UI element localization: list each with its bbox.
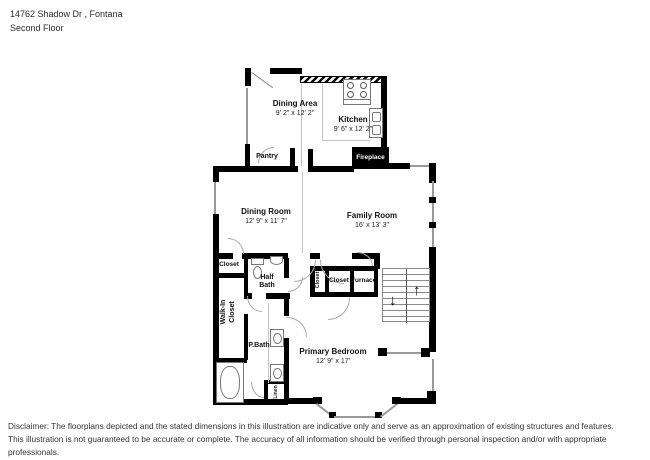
stove-icon (343, 79, 371, 100)
wall (245, 68, 251, 86)
wall (392, 397, 401, 404)
room-label-closet-small: Closet (314, 265, 322, 295)
bay-window (334, 416, 378, 418)
room-name: Primary Bedroom (299, 347, 366, 356)
burner-icon (347, 82, 354, 89)
window (214, 182, 216, 214)
room-label-walk-in-closet: Walk-In Closet (219, 295, 237, 329)
wall (429, 247, 436, 352)
fireplace-box: Fireplace (352, 147, 389, 169)
room-dims: 12' 9" x 17' (283, 357, 383, 367)
counter-line (301, 84, 302, 166)
bathtub-icon (216, 362, 244, 403)
room-dims: 16' x 13' 3" (332, 221, 412, 231)
plan-header: 14762 Shadow Dr , Fontana Second Floor (10, 7, 123, 35)
room-dims: 9' 6" x 12' 2" (313, 125, 393, 135)
wall (213, 273, 248, 278)
floorplan-page: 14762 Shadow Dr , Fontana Second Floor (0, 0, 650, 460)
floor-label: Second Floor (10, 21, 123, 35)
room-dims: 12' 9" x 11' 7" (226, 217, 306, 227)
stairs-down-arrow: ↓ (389, 293, 397, 308)
door-swing (228, 238, 244, 254)
stairs-up-arrow: ↑ (413, 283, 421, 298)
window (387, 352, 422, 354)
burner-icon (347, 91, 354, 98)
room-name: Kitchen (338, 115, 367, 124)
wall (284, 298, 289, 316)
window (432, 203, 434, 222)
wall (284, 258, 289, 278)
door-swing (251, 382, 264, 398)
disclaimer: Disclaimer: The floorplans depicted and … (8, 420, 648, 459)
wall (308, 166, 354, 172)
room-label-half-bath: Half Bath (254, 274, 280, 290)
fireplace-label: Fireplace (356, 154, 385, 161)
wall (244, 256, 248, 274)
wall (389, 163, 410, 169)
room-label-pantry: Pantry (244, 153, 290, 161)
door-swing (287, 317, 307, 337)
window (432, 359, 434, 392)
counter-line (322, 140, 370, 141)
door-swing (247, 296, 262, 312)
room-label-dining-room: Dining Room 12' 9" x 11' 7" (226, 207, 306, 226)
room-label-primary-bedroom: Primary Bedroom 12' 9" x 17' (283, 347, 383, 366)
room-name: Dining Room (241, 207, 291, 216)
wall (429, 163, 436, 183)
stair-divider (406, 269, 407, 323)
disclaimer-line-2: This illustration is not guaranteed to b… (8, 433, 648, 459)
window (432, 228, 434, 247)
wall (213, 166, 219, 182)
disclaimer-line-1: Disclaimer: The floorplans depicted and … (8, 420, 648, 433)
burner-icon (360, 91, 367, 98)
toilet-tank-icon (251, 258, 264, 265)
room-label-closet-bedroom: Closet (327, 277, 351, 285)
wall (421, 348, 430, 357)
window (246, 88, 248, 144)
oven-icon (343, 99, 371, 105)
room-label-linen: Linen (272, 378, 280, 406)
room-label-family-room: Family Room 16' x 13' 3" (332, 211, 412, 230)
wall (213, 166, 298, 172)
wall (244, 314, 248, 360)
sink-icon (270, 256, 283, 265)
tub-basin (220, 366, 240, 399)
burner-icon (360, 82, 367, 89)
room-label-closet-upper: Closet (214, 261, 244, 269)
window (432, 181, 434, 197)
room-label-furnace: Furnace (351, 277, 375, 285)
staircase: ↓ ↑ (382, 268, 430, 322)
room-label-kitchen: Kitchen 9' 6" x 12' 2" (313, 115, 393, 134)
room-label-p-bath: P.Bath (240, 342, 278, 350)
door-swing (328, 298, 350, 320)
door-leaf (251, 72, 273, 88)
address-text: 14762 Shadow Dr , Fontana (10, 7, 123, 21)
wall (288, 398, 316, 404)
wall (213, 214, 219, 258)
room-name: Dining Area (273, 99, 318, 108)
window (410, 165, 429, 167)
room-name: Family Room (347, 211, 397, 220)
bay-window (380, 402, 399, 417)
wall (270, 68, 302, 74)
wall (310, 253, 320, 259)
